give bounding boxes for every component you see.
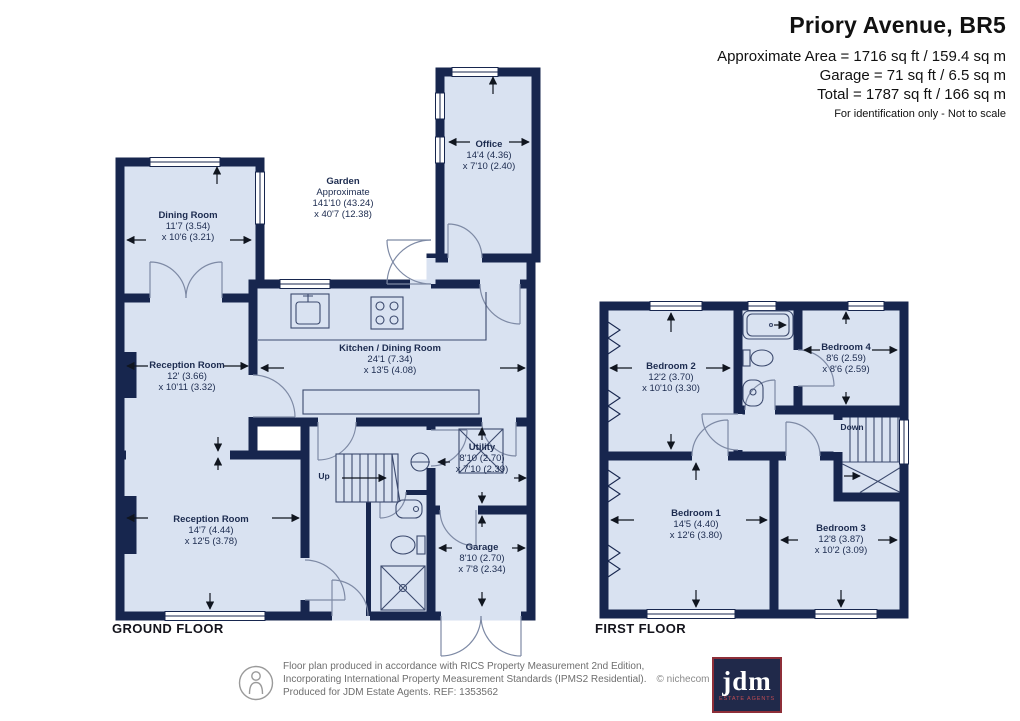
utility-dim2: x 7'10 (2.39) [456, 464, 509, 475]
stairs-up-label: Up [318, 471, 329, 481]
dining-room-dim2: x 10'6 (3.21) [158, 232, 217, 243]
reception2-dim2: x 12'5 (3.78) [173, 536, 248, 547]
garage-dim1: 8'10 (2.70) [458, 553, 505, 564]
room-label-kitchen-dining: Kitchen / Dining Room 24'1 (7.34) x 13'5… [339, 343, 441, 376]
stairs-up-icon [336, 454, 400, 502]
utility-dim1: 8'10 (2.70) [456, 453, 509, 464]
jdm-logo: jdm ESTATE AGENTS [712, 657, 782, 713]
bedroom1-dim1: 14'5 (4.40) [670, 519, 723, 530]
dining-room-name: Dining Room [158, 210, 217, 221]
bedroom2-name: Bedroom 2 [642, 361, 700, 372]
bedroom3-dim1: 12'8 (3.87) [815, 534, 868, 545]
room-label-dining-room: Dining Room 11'7 (3.54) x 10'6 (3.21) [158, 210, 217, 243]
room-label-utility: Utility 8'10 (2.70) x 7'10 (2.39) [456, 442, 509, 475]
bedroom2-dim2: x 10'10 (3.30) [642, 383, 700, 394]
bedroom3-dim2: x 10'2 (3.09) [815, 545, 868, 556]
room-label-bedroom-1: Bedroom 1 14'5 (4.40) x 12'6 (3.80) [670, 508, 723, 541]
office-name: Office [463, 139, 516, 150]
garage-name: Garage [458, 542, 505, 553]
room-label-garage: Garage 8'10 (2.70) x 7'8 (2.34) [458, 542, 505, 575]
footer-line2: Incorporating International Property Mea… [283, 674, 647, 685]
footer-line1: Floor plan produced in accordance with R… [283, 660, 737, 673]
identification-note: For identification only - Not to scale [717, 108, 1006, 120]
garden-dim2: x 40'7 (12.38) [313, 209, 374, 220]
garden-sub: Approximate [313, 187, 374, 198]
office-dim2: x 7'10 (2.40) [463, 161, 516, 172]
jdm-logo-mark: jdm [722, 669, 772, 694]
bedroom3-name: Bedroom 3 [815, 523, 868, 534]
page-title: Priory Avenue, BR5 [717, 12, 1006, 39]
bedroom1-name: Bedroom 1 [670, 508, 723, 519]
footer-disclaimer: Floor plan produced in accordance with R… [283, 660, 737, 699]
bedroom4-dim2: x 8'6 (2.59) [821, 364, 871, 375]
garden-dim1: 141'10 (43.24) [313, 198, 374, 209]
stairs-down-label: Down [840, 422, 863, 432]
footer-line3: Produced for JDM Estate Agents. REF: 135… [283, 686, 737, 699]
kitchen-dim1: 24'1 (7.34) [339, 354, 441, 365]
kitchen-name: Kitchen / Dining Room [339, 343, 441, 354]
bedroom1-dim2: x 12'6 (3.80) [670, 530, 723, 541]
jdm-logo-tagline: ESTATE AGENTS [719, 696, 775, 702]
reception1-dim1: 12' (3.66) [149, 371, 224, 382]
first-floor-label: FIRST FLOOR [595, 621, 686, 636]
garden-name: Garden [313, 176, 374, 187]
room-label-garden: Garden Approximate 141'10 (43.24) x 40'7… [313, 176, 374, 220]
room-label-bedroom-2: Bedroom 2 12'2 (3.70) x 10'10 (3.30) [642, 361, 700, 394]
bedroom4-dim1: 8'6 (2.59) [821, 353, 871, 364]
garage-dim2: x 7'8 (2.34) [458, 564, 505, 575]
approximate-area-line: Approximate Area = 1716 sq ft / 159.4 sq… [717, 47, 1006, 66]
room-label-reception-room-2: Reception Room 14'7 (4.44) x 12'5 (3.78) [173, 514, 248, 547]
floorplan-page: { "header": { "title": "Priory Avenue, B… [0, 0, 1020, 721]
reception2-dim1: 14'7 (4.44) [173, 525, 248, 536]
room-label-bedroom-3: Bedroom 3 12'8 (3.87) x 10'2 (3.09) [815, 523, 868, 556]
header: Priory Avenue, BR5 Approximate Area = 17… [717, 12, 1006, 120]
reception2-name: Reception Room [173, 514, 248, 525]
utility-name: Utility [456, 442, 509, 453]
reception1-dim2: x 10'11 (3.32) [149, 382, 224, 393]
room-label-bedroom-4: Bedroom 4 8'6 (2.59) x 8'6 (2.59) [821, 342, 871, 375]
garage-area-line: Garage = 71 sq ft / 6.5 sq m [717, 66, 1006, 85]
footer-line2-wrap: Incorporating International Property Mea… [283, 673, 737, 686]
total-area-line: Total = 1787 sq ft / 166 sq m [717, 85, 1006, 104]
bedroom2-dim1: 12'2 (3.70) [642, 372, 700, 383]
room-label-reception-room-1: Reception Room 12' (3.66) x 10'11 (3.32) [149, 360, 224, 393]
bedroom4-name: Bedroom 4 [821, 342, 871, 353]
kitchen-dim2: x 13'5 (4.08) [339, 365, 441, 376]
room-label-office: Office 14'4 (4.36) x 7'10 (2.40) [463, 139, 516, 172]
reception1-name: Reception Room [149, 360, 224, 371]
dining-room-dim1: 11'7 (3.54) [158, 221, 217, 232]
office-dim1: 14'4 (4.36) [463, 150, 516, 161]
ground-floor-label: GROUND FLOOR [112, 621, 224, 636]
